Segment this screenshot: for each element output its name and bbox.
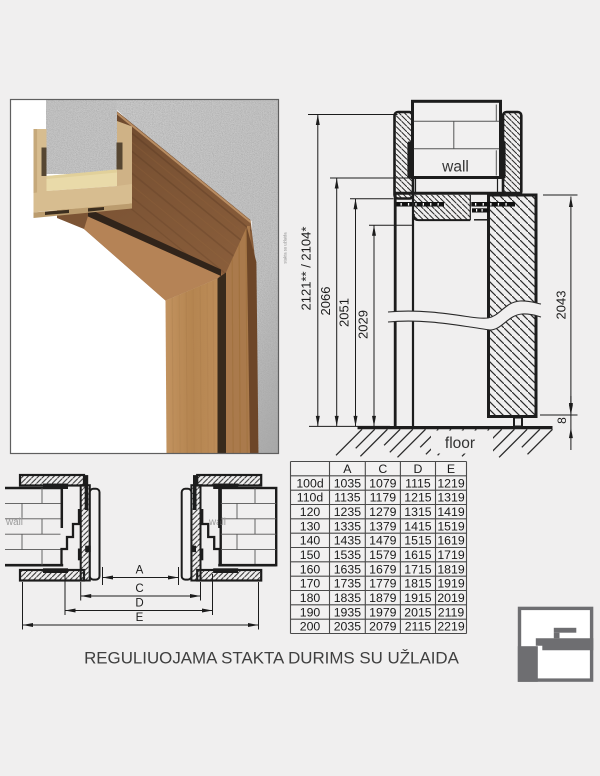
svg-text:110d: 110d xyxy=(297,491,324,505)
svg-text:2015: 2015 xyxy=(404,605,432,619)
svg-text:180: 180 xyxy=(300,591,321,605)
svg-text:wall: wall xyxy=(208,517,226,528)
svg-text:1719: 1719 xyxy=(437,548,465,562)
svg-text:1515: 1515 xyxy=(404,534,432,548)
svg-text:130: 130 xyxy=(300,519,321,533)
svg-text:D: D xyxy=(414,462,423,476)
svg-text:1935: 1935 xyxy=(334,605,362,619)
svg-text:1979: 1979 xyxy=(369,605,397,619)
svg-text:1479: 1479 xyxy=(369,534,397,548)
svg-text:2119: 2119 xyxy=(438,605,465,619)
svg-text:100d: 100d xyxy=(296,476,324,490)
svg-text:1535: 1535 xyxy=(334,548,362,562)
svg-text:1179: 1179 xyxy=(370,491,397,505)
svg-text:floor: floor xyxy=(445,435,475,452)
svg-text:1715: 1715 xyxy=(404,562,432,576)
svg-text:1819: 1819 xyxy=(437,562,465,576)
svg-text:2043: 2043 xyxy=(554,291,569,320)
svg-text:2051: 2051 xyxy=(337,298,352,327)
svg-text:C: C xyxy=(378,462,387,476)
svg-text:1679: 1679 xyxy=(369,562,397,576)
svg-text:D: D xyxy=(135,597,143,609)
svg-text:190: 190 xyxy=(300,605,321,619)
svg-text:1619: 1619 xyxy=(437,534,465,548)
svg-text:1035: 1035 xyxy=(334,476,362,490)
svg-text:1415: 1415 xyxy=(404,519,432,533)
svg-text:8: 8 xyxy=(555,417,569,424)
svg-text:1335: 1335 xyxy=(334,519,362,533)
svg-text:1215: 1215 xyxy=(404,491,432,505)
svg-text:1919: 1919 xyxy=(437,577,465,591)
svg-text:2079: 2079 xyxy=(369,620,397,634)
svg-text:1435: 1435 xyxy=(334,534,362,548)
svg-text:E: E xyxy=(447,462,455,476)
svg-text:A: A xyxy=(343,462,352,476)
svg-text:1579: 1579 xyxy=(369,548,397,562)
svg-text:A: A xyxy=(136,564,144,576)
svg-text:wall: wall xyxy=(441,159,469,176)
svg-text:170: 170 xyxy=(300,577,321,591)
svg-text:1735: 1735 xyxy=(334,577,362,591)
svg-text:C: C xyxy=(135,583,143,595)
svg-text:2115: 2115 xyxy=(405,620,432,634)
svg-text:1319: 1319 xyxy=(437,491,465,505)
svg-text:2019: 2019 xyxy=(437,591,465,605)
svg-text:1219: 1219 xyxy=(437,476,465,490)
svg-text:1815: 1815 xyxy=(404,577,432,591)
svg-text:1135: 1135 xyxy=(334,491,361,505)
svg-text:1915: 1915 xyxy=(404,591,432,605)
svg-text:E: E xyxy=(136,612,144,624)
svg-text:stakta su užlaida: stakta su užlaida xyxy=(283,232,288,264)
svg-text:120: 120 xyxy=(300,505,321,519)
svg-text:1835: 1835 xyxy=(334,591,362,605)
svg-text:160: 160 xyxy=(300,562,321,576)
svg-text:1115: 1115 xyxy=(405,476,431,490)
svg-text:1635: 1635 xyxy=(334,562,362,576)
svg-text:2035: 2035 xyxy=(334,620,362,634)
svg-text:1235: 1235 xyxy=(334,505,362,519)
svg-text:1079: 1079 xyxy=(369,476,397,490)
svg-text:140: 140 xyxy=(300,534,321,548)
svg-text:1779: 1779 xyxy=(369,577,397,591)
svg-text:1615: 1615 xyxy=(404,548,432,562)
svg-text:200: 200 xyxy=(300,620,321,634)
svg-text:2029: 2029 xyxy=(355,310,370,339)
svg-text:wall: wall xyxy=(5,517,23,528)
svg-text:2219: 2219 xyxy=(437,620,465,634)
svg-text:1379: 1379 xyxy=(369,519,397,533)
svg-text:1879: 1879 xyxy=(369,591,397,605)
svg-text:1419: 1419 xyxy=(437,505,465,519)
svg-text:1315: 1315 xyxy=(404,505,432,519)
svg-text:2066: 2066 xyxy=(318,287,333,316)
svg-text:2121** / 2104*: 2121** / 2104* xyxy=(299,227,314,311)
svg-text:REGULIUOJAMA STAKTA DURIMS SU: REGULIUOJAMA STAKTA DURIMS SU UŽLAIDA xyxy=(84,649,460,668)
svg-text:1279: 1279 xyxy=(369,505,397,519)
svg-text:1519: 1519 xyxy=(437,519,465,533)
svg-text:150: 150 xyxy=(300,548,321,562)
